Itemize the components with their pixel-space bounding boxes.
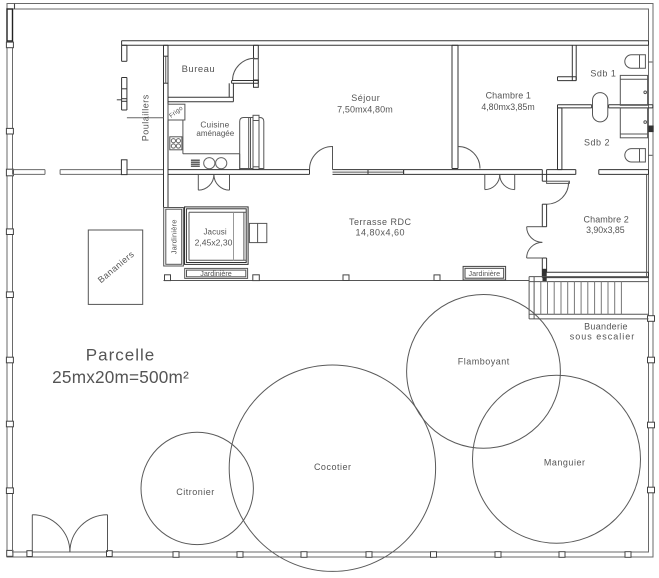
svg-text:Sdb 2: Sdb 2 [584, 137, 610, 147]
svg-text:Flamboyant: Flamboyant [458, 356, 510, 366]
svg-text:Séjour: Séjour [351, 93, 380, 103]
svg-text:Poulaillers: Poulaillers [140, 94, 150, 141]
svg-text:Chambre 1: Chambre 1 [486, 90, 531, 100]
svg-text:Jacusi: Jacusi [203, 227, 226, 236]
svg-text:3,90x3,85: 3,90x3,85 [586, 225, 625, 235]
svg-text:sous escalier: sous escalier [570, 332, 636, 342]
svg-text:Buanderie: Buanderie [584, 322, 628, 332]
svg-text:4,80mx3,85m: 4,80mx3,85m [481, 102, 534, 112]
svg-text:Jardinière: Jardinière [200, 269, 232, 278]
svg-text:aménagée: aménagée [196, 129, 234, 138]
svg-text:Terrasse RDC: Terrasse RDC [349, 217, 412, 227]
svg-text:25mx20m=500m²: 25mx20m=500m² [52, 367, 189, 387]
svg-text:Citronier: Citronier [176, 487, 215, 497]
svg-text:Manguier: Manguier [544, 458, 586, 468]
svg-text:Jardinière: Jardinière [469, 269, 501, 278]
svg-text:Parcelle: Parcelle [86, 346, 155, 365]
svg-text:Cocotier: Cocotier [314, 462, 352, 472]
svg-text:Jardinière: Jardinière [169, 219, 178, 254]
svg-text:Chambre 2: Chambre 2 [583, 215, 628, 225]
svg-text:Sdb 1: Sdb 1 [590, 69, 616, 79]
svg-text:2,45x2,30: 2,45x2,30 [195, 238, 233, 248]
svg-text:14,80x4,60: 14,80x4,60 [356, 228, 406, 238]
svg-text:7,50mx4,80m: 7,50mx4,80m [337, 105, 393, 115]
svg-text:Bureau: Bureau [182, 64, 216, 75]
